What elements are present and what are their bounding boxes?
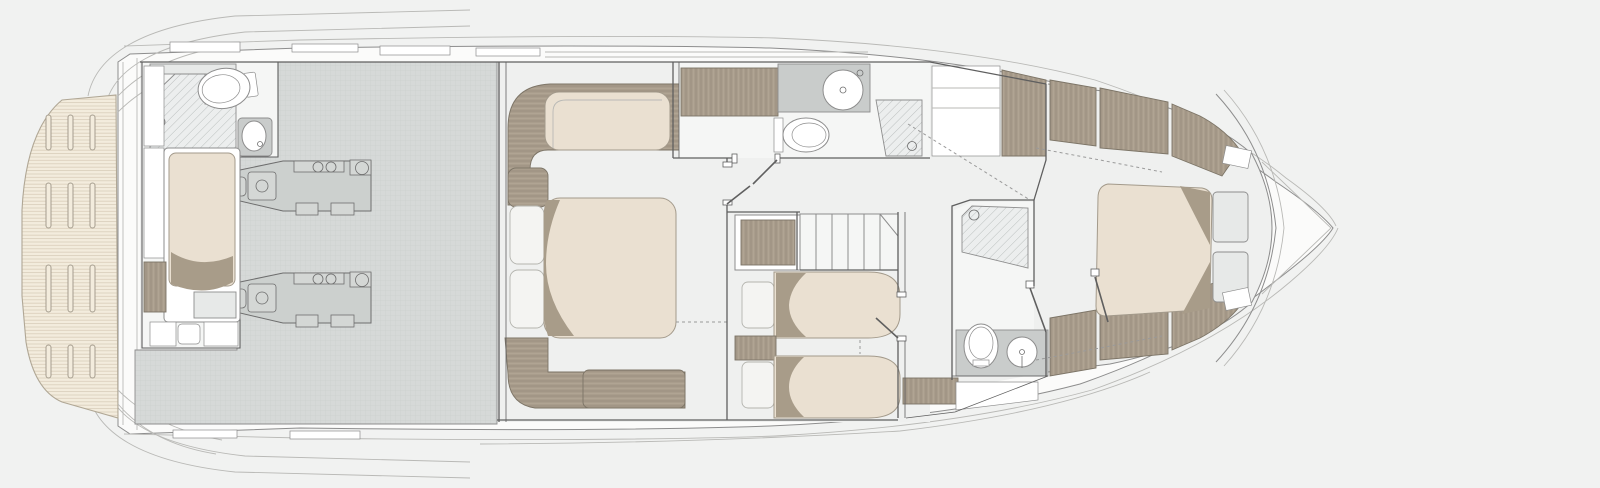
- crew-stool: [178, 324, 200, 344]
- fwd-bath-door-jamb: [1026, 281, 1034, 288]
- bath-door-jamb-1: [732, 154, 737, 163]
- master-toilet-cistern: [774, 118, 783, 152]
- crew-wardrobe-upper: [144, 66, 164, 146]
- vip-wardrobe-top-2: [1100, 88, 1168, 154]
- yacht-floor-plan: [0, 0, 1600, 488]
- deck-hatch-bottom-2: [290, 431, 360, 439]
- deck-hatch-top-1: [170, 42, 240, 52]
- crew-table: [194, 292, 236, 318]
- master-toilet-bowl: [792, 123, 826, 147]
- master-pillow-2: [510, 270, 544, 328]
- vip-door-jamb: [1091, 269, 1099, 276]
- master-bed-mattress: [544, 198, 676, 338]
- twin-drawers: [903, 378, 958, 404]
- crew-cabinet-1: [150, 322, 176, 346]
- staircase: [800, 214, 898, 270]
- deck-hatch-top-4: [476, 48, 540, 56]
- twin-nightstand: [735, 336, 776, 360]
- twin-pillow-1: [742, 282, 774, 328]
- vip-nightstand-port: [1213, 192, 1248, 242]
- crew-washbasin-icon: [242, 121, 266, 151]
- crew-wardrobe-lower: [144, 148, 164, 258]
- master-sofa-armrest: [508, 168, 548, 207]
- floor-plan-canvas: [0, 0, 1600, 488]
- twin-pillow-2: [742, 362, 774, 408]
- twin-wardrobe-wood: [741, 220, 795, 265]
- crew-cabinet-wood: [144, 262, 166, 312]
- twin-door-jamb-1: [897, 292, 906, 297]
- master-sofa-cushion: [545, 92, 670, 150]
- master-bathroom: [679, 62, 930, 158]
- vip-wardrobe-top-1: [1050, 80, 1096, 146]
- twin-door-jamb-2: [897, 336, 906, 341]
- master-bath-vanity: [681, 68, 778, 116]
- stairs-floor: [800, 214, 898, 270]
- master-foot-bench-cushion: [583, 370, 685, 408]
- master-door-jamb-1: [723, 162, 732, 167]
- deck-hatch-top-2: [292, 44, 358, 52]
- deck-hatch-bottom-1: [173, 430, 237, 438]
- fwd-toilet-bowl: [969, 327, 993, 359]
- vip-wardrobe-bottom-1: [1050, 310, 1096, 376]
- deck-hatch-top-3: [380, 46, 450, 55]
- fwd-toilet-seat: [973, 360, 989, 366]
- master-pillow-1: [510, 206, 544, 264]
- closet-unit: [932, 66, 1000, 156]
- master-washbasin-icon: [823, 70, 863, 110]
- crew-cabinet-2: [204, 322, 238, 346]
